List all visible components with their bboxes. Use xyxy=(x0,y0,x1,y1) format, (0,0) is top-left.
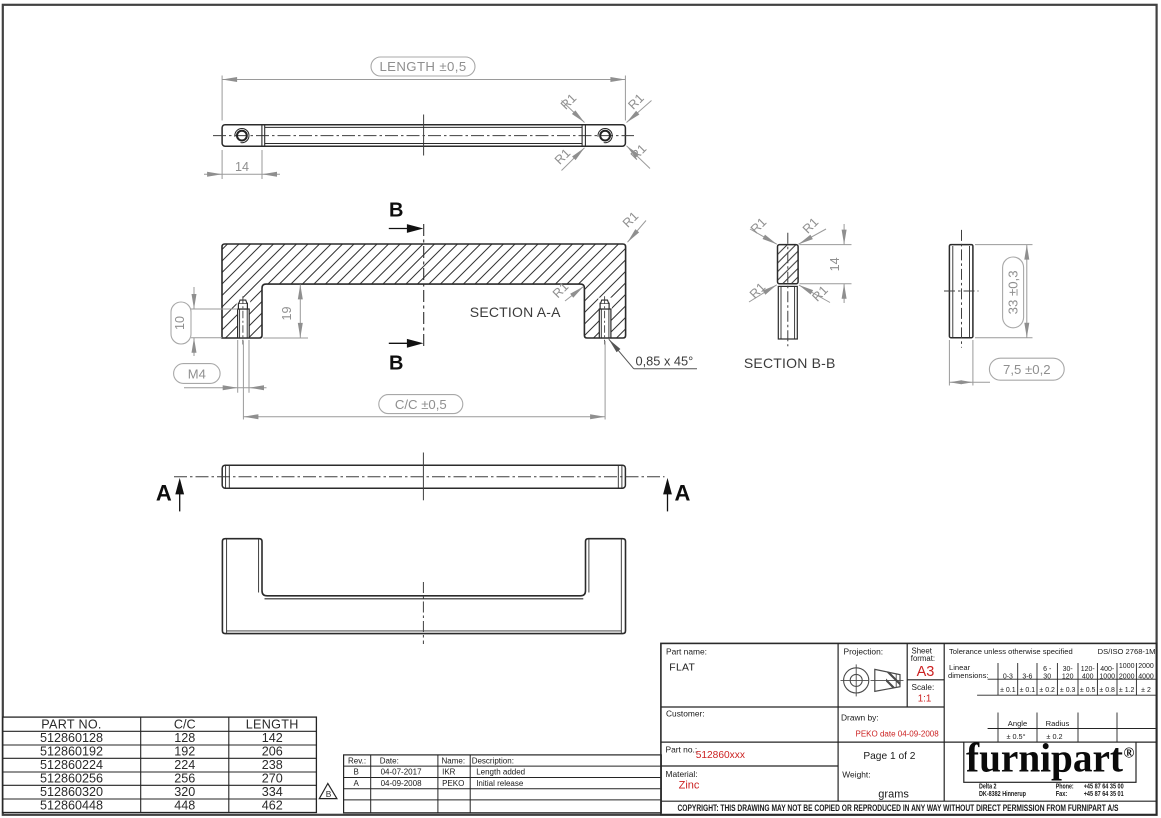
svg-text:furnipart: furnipart xyxy=(966,734,1123,780)
svg-text:04-09-2008: 04-09-2008 xyxy=(381,779,422,788)
svg-text:LENGTH ±0,5: LENGTH ±0,5 xyxy=(379,59,466,74)
svg-text:R1: R1 xyxy=(748,215,769,236)
svg-text:04-07-2017: 04-07-2017 xyxy=(381,768,422,777)
svg-text:Drawn by:: Drawn by: xyxy=(841,713,879,723)
svg-text:Zinc: Zinc xyxy=(679,780,700,792)
svg-text:512860448: 512860448 xyxy=(40,799,103,813)
svg-text:Projection:: Projection: xyxy=(844,647,884,657)
svg-text:512860192: 512860192 xyxy=(40,745,103,759)
svg-text:®: ® xyxy=(1124,746,1135,762)
svg-text:512860256: 512860256 xyxy=(40,772,103,786)
svg-text:Part name:: Part name: xyxy=(666,647,707,657)
svg-text:334: 334 xyxy=(262,785,283,799)
svg-text:+45 87 64 35 01: +45 87 64 35 01 xyxy=(1084,791,1124,798)
svg-text:± 1.2: ± 1.2 xyxy=(1119,687,1135,694)
svg-text:Delta 2: Delta 2 xyxy=(979,784,997,791)
svg-text:Weight:: Weight: xyxy=(842,769,870,779)
svg-text:R1: R1 xyxy=(628,142,649,163)
svg-text:Page 1 of 2: Page 1 of 2 xyxy=(863,751,915,762)
svg-text:SECTION B-B: SECTION B-B xyxy=(744,355,836,371)
svg-text:PART NO.: PART NO. xyxy=(41,718,102,732)
svg-text:FLAT: FLAT xyxy=(669,662,695,673)
svg-text:COPYRIGHT: THIS DRAWING MAY NO: COPYRIGHT: THIS DRAWING MAY NOT BE COPIE… xyxy=(678,803,1119,813)
svg-text:512860320: 512860320 xyxy=(40,785,103,799)
svg-text:A: A xyxy=(354,779,360,788)
svg-text:± 0.5: ± 0.5 xyxy=(1080,687,1096,694)
svg-text:B: B xyxy=(326,789,332,799)
svg-text:R1: R1 xyxy=(552,146,573,167)
svg-text:Tolerance unless otherwise spe: Tolerance unless otherwise specified xyxy=(949,647,1073,656)
svg-text:M4: M4 xyxy=(188,367,206,382)
svg-text:B: B xyxy=(389,352,403,374)
svg-text:grams: grams xyxy=(878,788,909,800)
svg-text:A: A xyxy=(675,481,691,506)
svg-text:Fax:: Fax: xyxy=(1056,791,1068,798)
svg-text:R1: R1 xyxy=(747,280,768,301)
svg-text:2000: 2000 xyxy=(1138,663,1154,670)
svg-text:R1: R1 xyxy=(558,91,579,112)
svg-text:Angle: Angle xyxy=(1008,719,1027,728)
svg-text:± 0.1: ± 0.1 xyxy=(1020,687,1036,694)
svg-text:192: 192 xyxy=(174,745,195,759)
svg-text:0-3: 0-3 xyxy=(1003,673,1013,680)
svg-text:C/C ±0,5: C/C ±0,5 xyxy=(395,397,447,412)
svg-text:Scale:: Scale: xyxy=(912,683,935,692)
svg-text:A3: A3 xyxy=(917,664,935,680)
svg-text:± 0.1: ± 0.1 xyxy=(1000,687,1016,694)
svg-text:400: 400 xyxy=(1082,673,1094,680)
svg-text:Length added: Length added xyxy=(476,768,525,777)
svg-text:0,85 x 45°: 0,85 x 45° xyxy=(636,353,694,368)
svg-text:dimensions:: dimensions: xyxy=(948,671,989,680)
svg-text:R1: R1 xyxy=(626,91,647,112)
svg-text:Radius: Radius xyxy=(1046,719,1070,728)
svg-text:Phone:: Phone: xyxy=(1056,784,1074,791)
svg-text:512860128: 512860128 xyxy=(40,731,103,745)
svg-text:1000: 1000 xyxy=(1119,663,1135,670)
svg-text:DK-8382 Hinnerup: DK-8382 Hinnerup xyxy=(979,791,1026,798)
svg-text:238: 238 xyxy=(262,758,283,772)
svg-text:14: 14 xyxy=(235,160,249,174)
svg-text:Material:: Material: xyxy=(666,769,698,779)
svg-text:10: 10 xyxy=(173,316,187,330)
svg-text:462: 462 xyxy=(262,799,283,813)
svg-text:IKR: IKR xyxy=(442,768,456,777)
svg-text:400-: 400- xyxy=(1100,666,1115,673)
svg-text:3-6: 3-6 xyxy=(1022,673,1032,680)
svg-text:± 0.8: ± 0.8 xyxy=(1099,687,1115,694)
svg-text:4000: 4000 xyxy=(1138,673,1154,680)
svg-text:± 2: ± 2 xyxy=(1141,687,1151,694)
svg-text:224: 224 xyxy=(174,758,195,772)
svg-text:120-: 120- xyxy=(1081,666,1096,673)
svg-text:6 -: 6 - xyxy=(1043,666,1052,673)
svg-text:206: 206 xyxy=(262,745,283,759)
svg-text:± 0.2: ± 0.2 xyxy=(1039,687,1055,694)
svg-text:SECTION A-A: SECTION A-A xyxy=(470,304,561,320)
svg-text:512860224: 512860224 xyxy=(40,758,103,772)
svg-text:Initial release: Initial release xyxy=(476,779,524,788)
svg-text:512860xxx: 512860xxx xyxy=(696,750,745,761)
svg-text:DS/ISO 2768-1M: DS/ISO 2768-1M xyxy=(1098,647,1156,656)
svg-text:R1: R1 xyxy=(620,209,641,230)
svg-text:14: 14 xyxy=(828,257,842,271)
svg-text:128: 128 xyxy=(174,731,195,745)
svg-text:Date:: Date: xyxy=(380,756,399,765)
svg-text:1:1: 1:1 xyxy=(918,694,932,705)
svg-text:+45 87 64 35 00: +45 87 64 35 00 xyxy=(1084,784,1124,791)
svg-text:256: 256 xyxy=(174,772,195,786)
svg-text:B: B xyxy=(389,200,403,222)
svg-text:PEKO date 04-09-2008: PEKO date 04-09-2008 xyxy=(856,730,940,739)
svg-text:PEKO: PEKO xyxy=(442,779,464,788)
svg-text:2000: 2000 xyxy=(1119,673,1135,680)
svg-text:Name:: Name: xyxy=(442,756,466,765)
svg-text:30: 30 xyxy=(1043,673,1051,680)
svg-text:270: 270 xyxy=(262,772,283,786)
svg-text:120: 120 xyxy=(1062,673,1074,680)
svg-text:Description:: Description: xyxy=(472,756,514,765)
svg-text:C/C: C/C xyxy=(174,718,196,732)
svg-text:142: 142 xyxy=(262,731,283,745)
svg-text:30-: 30- xyxy=(1063,666,1074,673)
svg-text:format:: format: xyxy=(911,654,935,663)
svg-text:448: 448 xyxy=(174,799,195,813)
svg-text:33 ±0,3: 33 ±0,3 xyxy=(1006,270,1021,314)
svg-text:1000: 1000 xyxy=(1099,673,1115,680)
svg-text:Part no.:: Part no.: xyxy=(666,744,698,754)
svg-text:19: 19 xyxy=(280,306,294,320)
svg-text:320: 320 xyxy=(174,785,195,799)
svg-text:7,5 ±0,2: 7,5 ±0,2 xyxy=(1003,362,1051,377)
svg-text:± 0.3: ± 0.3 xyxy=(1060,687,1076,694)
svg-text:Customer:: Customer: xyxy=(666,709,705,719)
svg-text:B: B xyxy=(354,768,359,777)
svg-text:LENGTH: LENGTH xyxy=(246,718,299,732)
svg-text:A: A xyxy=(156,481,172,506)
svg-text:Rev.:: Rev.: xyxy=(348,756,366,765)
